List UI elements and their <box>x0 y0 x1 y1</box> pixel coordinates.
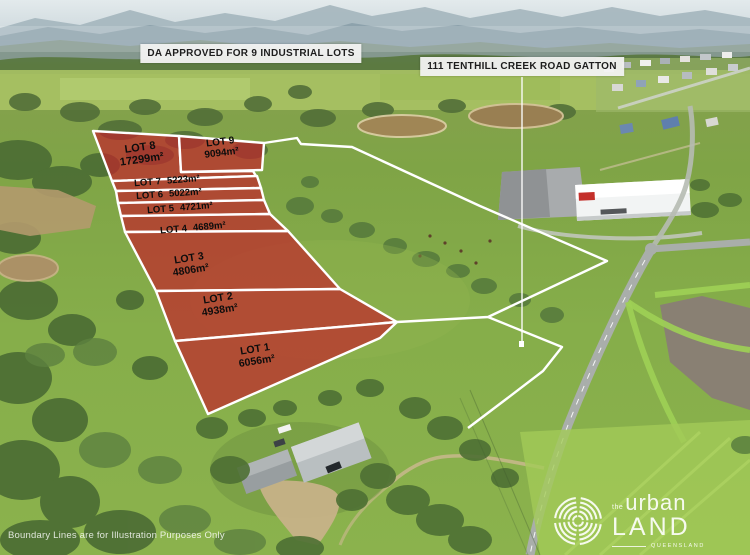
logo-region: QUEENSLAND <box>651 543 705 549</box>
logo-mark-icon <box>552 495 604 547</box>
red-lot-polygons <box>93 131 397 414</box>
boundary-disclaimer: Boundary Lines are for Illustration Purp… <box>8 530 225 541</box>
lot-3-polygon <box>125 231 340 291</box>
address-leader-line <box>519 77 524 347</box>
listing-image: DA APPROVED FOR 9 INDUSTRIAL LOTS 111 TE… <box>0 0 750 555</box>
agency-logo: the urban LAND QUEENSLAND <box>552 492 705 549</box>
logo-text: the urban LAND QUEENSLAND <box>612 492 705 549</box>
lot-4-polygon <box>121 214 288 232</box>
logo-land: LAND <box>612 515 705 540</box>
lot-boundary-overlay <box>0 0 750 555</box>
da-approval-callout: DA APPROVED FOR 9 INDUSTRIAL LOTS <box>140 44 361 63</box>
logo-rule <box>612 546 646 547</box>
address-callout: 111 TENTHILL CREEK ROAD GATTON <box>420 57 624 76</box>
lot-9-polygon <box>179 136 264 172</box>
logo-urban: urban <box>625 492 686 514</box>
